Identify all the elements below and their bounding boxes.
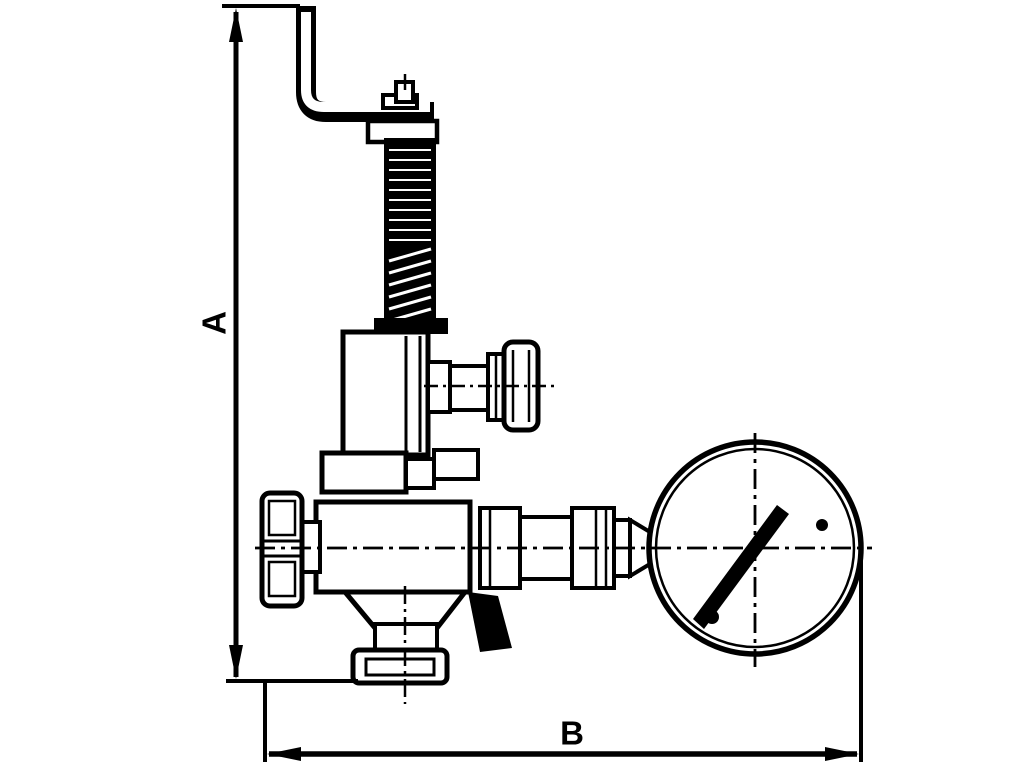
spindle-spring-column: [374, 138, 448, 334]
outlet-flange: [353, 650, 447, 683]
dim-b-arrow-left: [267, 747, 301, 761]
hand-knob: [262, 493, 320, 606]
body-lower-boss: [468, 592, 512, 652]
flange-step: [406, 459, 434, 488]
gauge-dot-left: [705, 610, 719, 624]
flange-nut: [322, 453, 406, 492]
bonnet-flange-nut: [322, 450, 478, 492]
spring-bonnet: [343, 332, 428, 455]
bonnet-housing: [343, 332, 428, 455]
spring-column-body: [384, 138, 436, 334]
valve-technical-drawing: A B: [0, 0, 1024, 766]
dim-a-arrow-down: [229, 645, 243, 679]
flange-right-block: [434, 450, 478, 479]
dimension-b-label: B: [560, 715, 584, 752]
dimension-a-label: A: [196, 311, 233, 335]
outlet-flange-inner: [366, 659, 434, 675]
dim-a-arrow-up: [229, 8, 243, 42]
knob-panel-bottom: [269, 562, 295, 596]
valve-technical-drawing-page: A B: [0, 0, 1024, 766]
gauge-dot-right: [816, 519, 828, 531]
knob-panel-top: [269, 501, 295, 535]
seal-block: [450, 366, 490, 410]
dim-b-arrow-right: [825, 747, 859, 761]
